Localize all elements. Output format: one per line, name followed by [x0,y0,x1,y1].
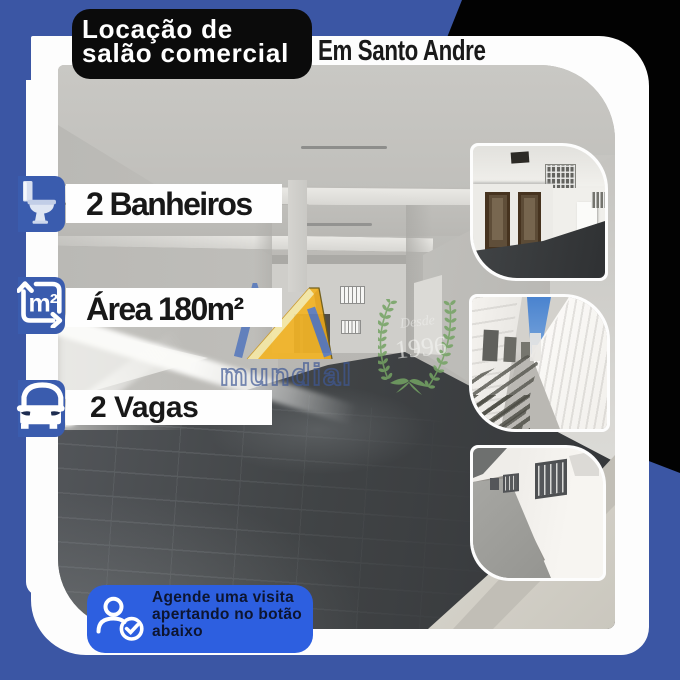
svg-text:m²: m² [29,290,58,318]
